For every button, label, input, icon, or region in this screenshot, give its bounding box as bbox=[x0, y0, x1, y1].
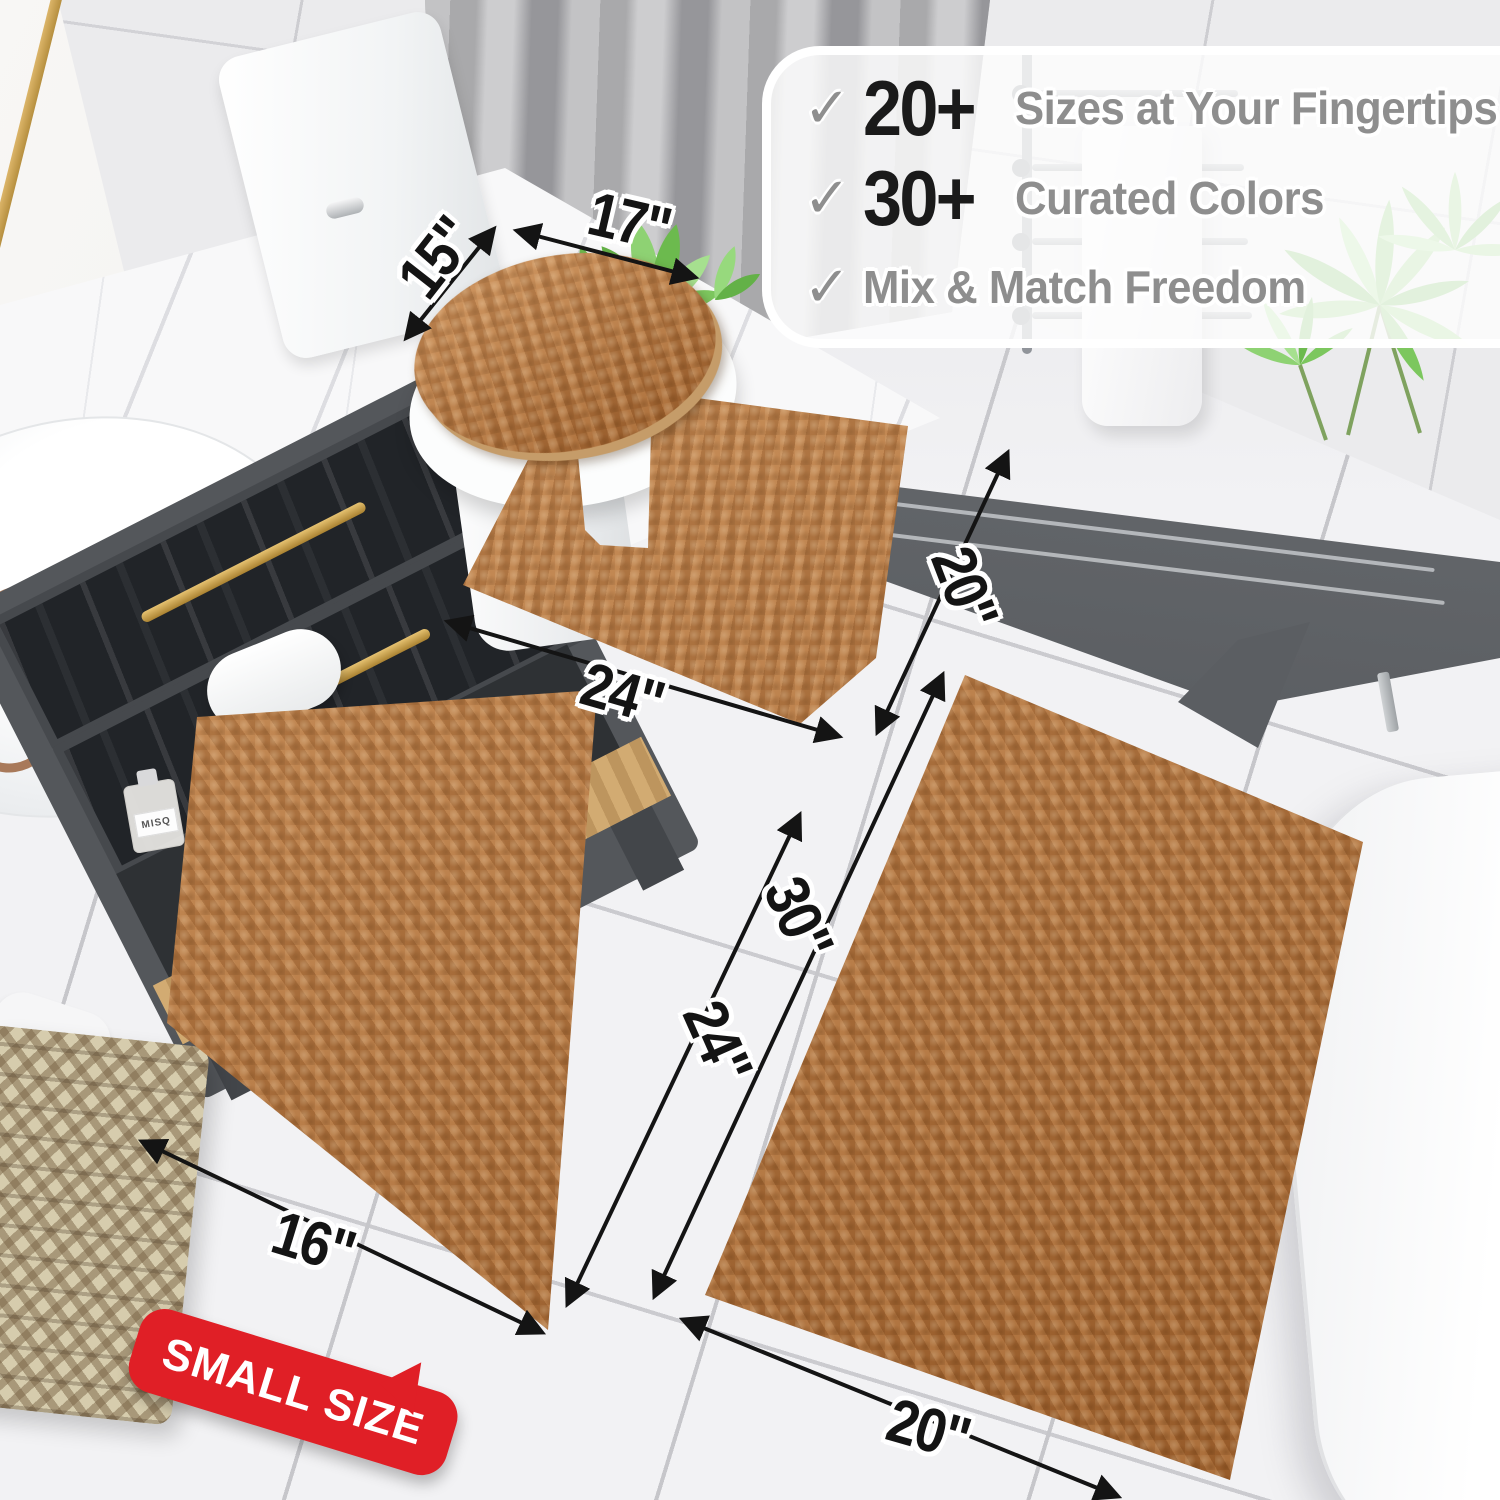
feature-row-colors: ✓ 30+ Curated Colors bbox=[791, 153, 1500, 243]
feature-stat: 20+ bbox=[863, 63, 1000, 154]
feature-stat: 30+ bbox=[863, 153, 1000, 244]
feature-row-mix-match: ✓ Mix & Match Freedom bbox=[791, 243, 1500, 331]
checkmark-icon: ✓ bbox=[791, 165, 863, 231]
feature-row-sizes: ✓ 20+ Sizes at Your Fingertips bbox=[791, 63, 1500, 153]
feature-label: Sizes at Your Fingertips bbox=[1015, 81, 1497, 135]
product-image: MISQ bbox=[0, 0, 1500, 1500]
feature-callout-box: ✓ 20+ Sizes at Your Fingertips ✓ 30+ Cur… bbox=[762, 46, 1500, 348]
checkmark-icon: ✓ bbox=[791, 254, 863, 320]
feature-label: Mix & Match Freedom bbox=[863, 260, 1306, 314]
arrow-large-rug-length bbox=[655, 676, 942, 1295]
feature-label: Curated Colors bbox=[1015, 171, 1324, 225]
checkmark-icon: ✓ bbox=[791, 75, 863, 141]
